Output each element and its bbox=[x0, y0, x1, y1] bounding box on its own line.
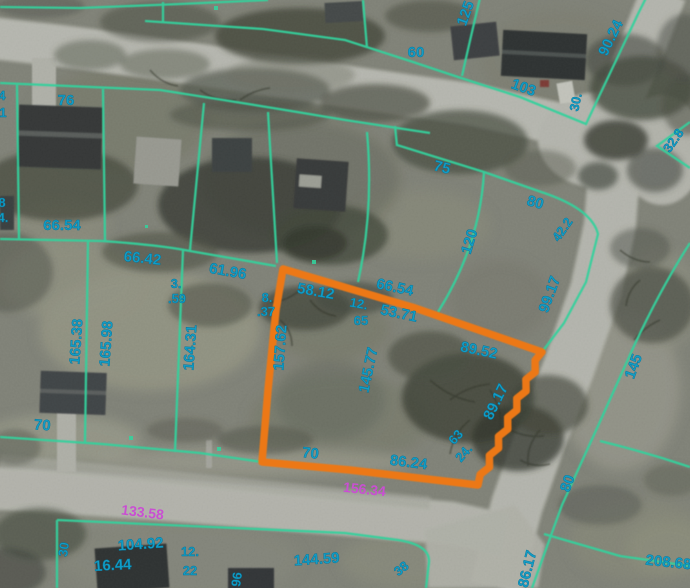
svg-text:76: 76 bbox=[58, 92, 75, 109]
svg-text:96: 96 bbox=[228, 571, 245, 587]
svg-text:144.59: 144.59 bbox=[293, 549, 340, 569]
svg-text:70: 70 bbox=[301, 444, 319, 463]
svg-text:4.: 4. bbox=[0, 210, 8, 225]
svg-text:60: 60 bbox=[408, 44, 425, 61]
svg-text:70: 70 bbox=[33, 416, 51, 434]
svg-text:8.: 8. bbox=[262, 290, 273, 305]
svg-text:22: 22 bbox=[183, 563, 197, 578]
svg-text:30: 30 bbox=[55, 541, 72, 557]
svg-text:12.: 12. bbox=[349, 295, 369, 313]
svg-text:165.98: 165.98 bbox=[96, 320, 116, 367]
svg-text:3.: 3. bbox=[171, 276, 182, 291]
svg-text:8: 8 bbox=[0, 195, 6, 210]
svg-text:.37: .37 bbox=[257, 304, 275, 319]
svg-text:165.38: 165.38 bbox=[66, 318, 86, 365]
svg-text:.59: .59 bbox=[168, 291, 186, 306]
svg-text:104.92: 104.92 bbox=[117, 534, 164, 554]
svg-text:4: 4 bbox=[0, 88, 6, 103]
svg-text:65: 65 bbox=[354, 313, 368, 328]
svg-text:164.31: 164.31 bbox=[180, 324, 200, 371]
svg-text:16.44: 16.44 bbox=[94, 556, 133, 575]
svg-text:1: 1 bbox=[0, 105, 7, 120]
svg-text:157.62: 157.62 bbox=[270, 324, 290, 371]
svg-text:66.54: 66.54 bbox=[43, 217, 81, 234]
svg-text:12.: 12. bbox=[181, 544, 199, 559]
